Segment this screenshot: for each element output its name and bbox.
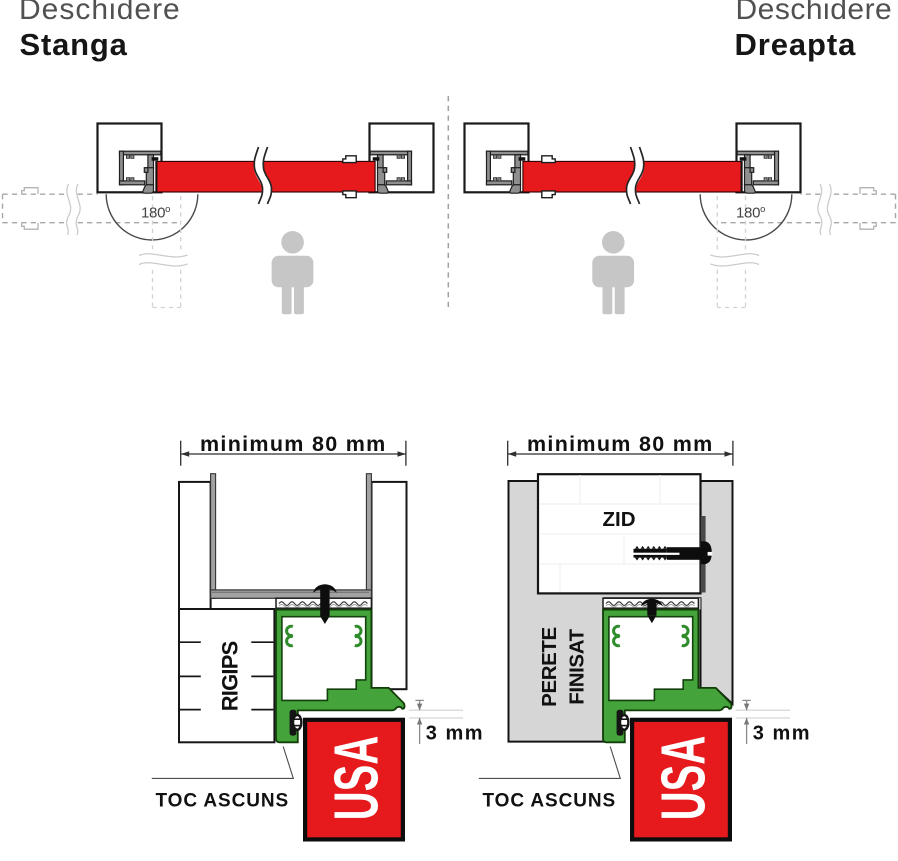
svg-text:Stanga: Stanga (20, 27, 128, 62)
svg-text:RIGIPS: RIGIPS (218, 641, 243, 711)
svg-text:Deschidere: Deschidere (19, 0, 181, 26)
svg-text:FINISAT: FINISAT (566, 628, 589, 704)
svg-text:Deschidere: Deschidere (736, 0, 893, 26)
svg-text:Dreapta: Dreapta (735, 27, 857, 62)
svg-text:180o: 180o (141, 204, 170, 222)
svg-text:ZID: ZID (602, 508, 635, 531)
svg-text:180o: 180o (736, 204, 765, 222)
svg-text:PERETE: PERETE (538, 627, 561, 707)
